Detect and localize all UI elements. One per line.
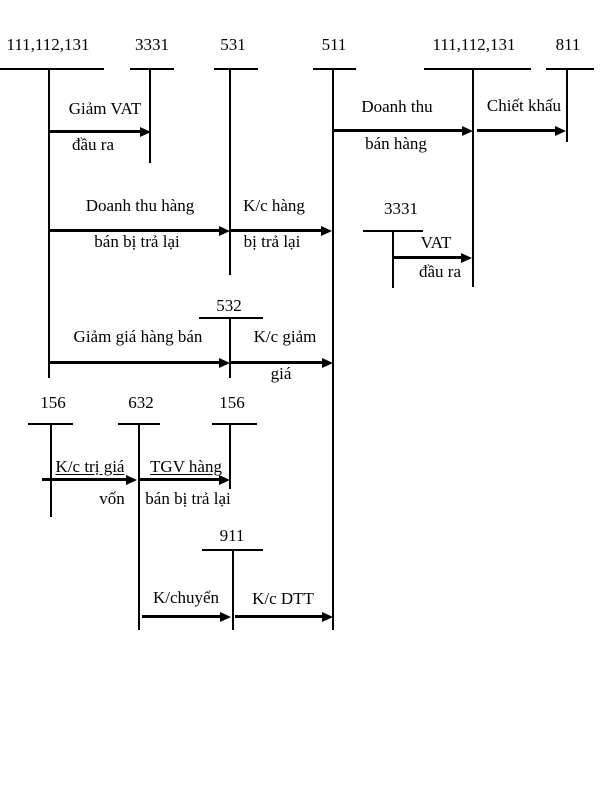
arrow-giam-vat-dau-ra	[50, 130, 140, 133]
flow-label-gia: giá	[271, 365, 292, 383]
flow-label-kc-hang: K/c hàng	[243, 197, 305, 215]
account-label-111-112-131-right: 111,112,131	[432, 36, 515, 54]
arrow-kc-dtt	[235, 615, 322, 618]
flow-label-von: vốn	[99, 490, 125, 508]
account-label-111-112-131-left: 111,112,131	[6, 36, 89, 54]
arrow-giam-gia-hang-ban	[49, 361, 219, 364]
flow-label-dau-ra: đầu ra	[72, 136, 114, 154]
account-label-156-left: 156	[40, 394, 66, 412]
flow-label-doanh-thu: Doanh thu	[361, 98, 432, 116]
taccount-stem-811	[566, 70, 568, 142]
flow-label-doanh-thu-hang: Doanh thu hàng	[86, 197, 195, 215]
account-label-632: 632	[128, 394, 154, 412]
flow-label-vat-dau-ra: đầu ra	[419, 263, 461, 281]
account-label-3331-middle: 3331	[384, 200, 418, 218]
taccount-stem-3331-middle	[392, 232, 394, 288]
taccount-topline-156-right	[212, 423, 257, 425]
taccount-topline-111-left	[0, 68, 104, 70]
taccount-stem-511	[332, 70, 334, 630]
flow-label-k-chuyen: K/chuyển	[153, 589, 219, 607]
flow-label-tgv-hang: TGV hàng	[150, 458, 222, 476]
flow-label-ban-bi-tra-lai: bán bị trả lại	[94, 233, 179, 251]
taccount-stem-156-left	[50, 425, 52, 517]
taccount-stem-531	[229, 70, 231, 275]
taccount-topline-511	[313, 68, 356, 70]
arrow-doanh-thu-ban-hang	[334, 129, 462, 132]
account-label-532: 532	[216, 297, 242, 315]
flow-label-giam-gia-hang-ban: Giảm giá hàng bán	[74, 328, 203, 346]
taccount-topline-3331-top	[130, 68, 174, 70]
account-label-3331-top: 3331	[135, 36, 169, 54]
taccount-stem-111-left	[48, 70, 50, 378]
account-label-811: 811	[556, 36, 581, 54]
account-label-911: 911	[220, 527, 245, 545]
flow-label-kc-giam: K/c giảm	[254, 328, 317, 346]
taccount-stem-532	[229, 319, 231, 378]
flow-label-vat: VAT	[421, 234, 452, 252]
arrow-kc-tri-gia-von	[42, 478, 126, 481]
account-label-156-right: 156	[219, 394, 245, 412]
flow-label-kc-dtt: K/c DTT	[252, 590, 314, 608]
taccount-stem-911	[232, 551, 234, 630]
flow-label-ban-bi-tra-lai-2: bán bị trả lại	[145, 490, 230, 508]
arrow-k-chuyen	[142, 615, 220, 618]
taccount-topline-532	[199, 317, 263, 319]
arrow-vat-dau-ra	[394, 256, 461, 259]
taccount-stem-632	[138, 425, 140, 630]
flow-label-chiet-khau: Chiết khấu	[487, 97, 561, 115]
taccount-stem-3331-top	[149, 70, 151, 163]
account-label-531: 531	[220, 36, 246, 54]
taccount-topline-811	[546, 68, 594, 70]
flow-label-giam-vat: Giảm VAT	[69, 100, 142, 118]
account-label-511: 511	[322, 36, 347, 54]
arrow-tgv-hang-ban-tra-lai	[140, 478, 219, 481]
taccount-topline-531	[214, 68, 258, 70]
flow-label-bi-tra-lai: bị trả lại	[244, 233, 301, 251]
flow-label-ban-hang: bán hàng	[365, 135, 427, 153]
flow-label-kc-tri-gia: K/c trị giá	[56, 458, 125, 476]
taccount-stem-111-right	[472, 70, 474, 287]
arrow-chiet-khau	[477, 129, 555, 132]
taccount-topline-111-right	[424, 68, 531, 70]
accounting-flow-diagram: 111,112,131 3331 531 511 111,112,131 811…	[0, 0, 614, 786]
